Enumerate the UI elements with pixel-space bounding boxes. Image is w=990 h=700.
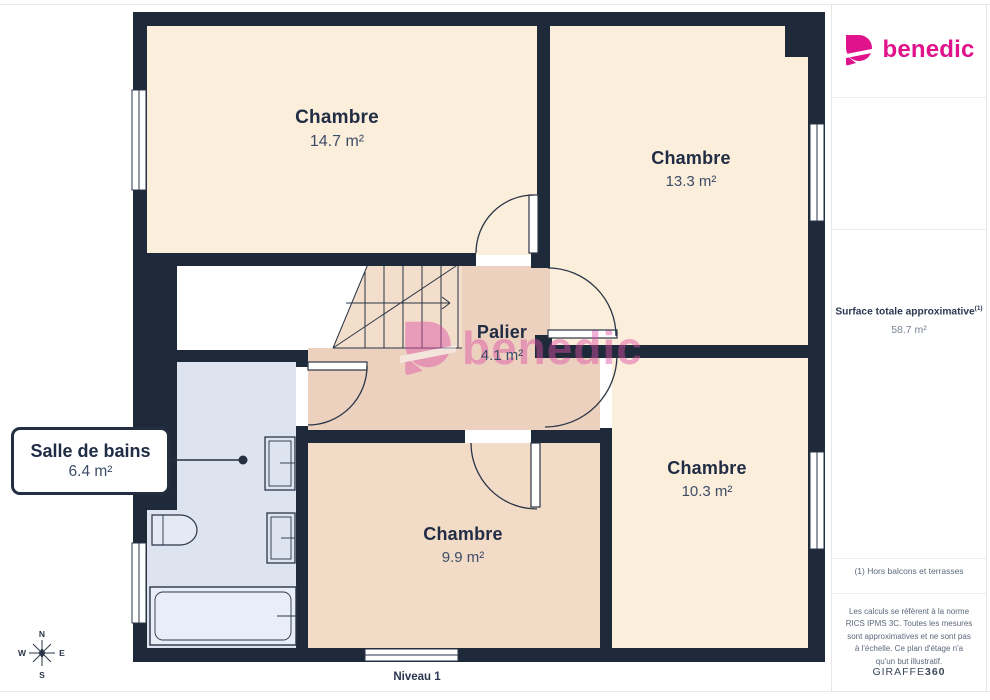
room-area: 6.4 m² [69, 464, 113, 480]
toilet [152, 515, 197, 545]
surface-total-text: Surface totale approximative [835, 306, 974, 317]
sink [267, 513, 295, 563]
brand-logo-text: benedic [882, 36, 974, 64]
wall-chambre-s-top-a [296, 430, 465, 443]
sidebar-divider [832, 97, 986, 98]
compass-s: S [39, 670, 45, 680]
provider-logo: GIRAFFE360 [832, 666, 986, 678]
room-chambre-ne-floor [550, 26, 808, 347]
brand-logo: benedic [832, 33, 986, 67]
wall-top-rooms-divider [537, 26, 550, 255]
window [810, 452, 824, 549]
compass-n: N [39, 629, 45, 639]
palier-floor [462, 266, 539, 350]
surface-total-superscript: (1) [975, 305, 983, 312]
wall-bottom [133, 648, 825, 662]
surface-total-value: 58.7 m² [832, 324, 986, 336]
room-name: Salle de bains [30, 442, 150, 460]
sidebar-divider [832, 593, 986, 594]
provider-suffix: 360 [925, 666, 946, 678]
hallway-floor [308, 348, 600, 430]
sidebar-divider [832, 229, 986, 230]
window [810, 124, 824, 221]
legal-disclaimer: Les calculs se réfèrent à la norme RICS … [845, 606, 973, 668]
wall-chambre-s-top-b [531, 430, 612, 443]
brand-logo-icon [843, 33, 875, 67]
surface-total-block: Surface totale approximative(1) 58.7 m² [832, 305, 986, 336]
floor-plan-page: N S W E benedic Chambre 14.7 m² Chambre … [0, 0, 990, 700]
wall-right-rooms-divider [552, 345, 810, 358]
window [132, 543, 146, 623]
wall-top [133, 12, 825, 26]
footnote: (1) Hors balcons et terrasses [838, 566, 980, 576]
wall-bathroom-right [296, 426, 308, 648]
wall-right [808, 26, 825, 648]
room-fills [147, 26, 808, 650]
level-label: Niveau 1 [317, 671, 517, 683]
window [132, 90, 146, 190]
room-label-salle-de-bains: Salle de bains 6.4 m² [11, 427, 170, 495]
sink [265, 437, 295, 490]
window [365, 649, 458, 661]
wall-block-a [531, 253, 550, 268]
room-chambre-nw-floor [147, 26, 537, 255]
compass-w: W [18, 648, 27, 658]
wall-bottom-rooms-divider [600, 428, 612, 648]
bathtub [150, 587, 296, 645]
surface-total-label: Surface totale approximative(1) [832, 305, 986, 317]
compass-icon [29, 640, 55, 666]
wall-corner-block [785, 26, 825, 57]
provider-name: GIRAFFE [872, 666, 925, 678]
compass-e: E [59, 648, 65, 658]
wall-mid-horizontal [133, 253, 476, 266]
room-chambre-se-floor [612, 358, 808, 650]
info-sidebar: benedic Surface totale approximative(1) … [831, 4, 987, 692]
sidebar-divider [832, 558, 986, 559]
room-chambre-s-floor [308, 443, 600, 650]
palier-doorway-floor [537, 266, 550, 337]
